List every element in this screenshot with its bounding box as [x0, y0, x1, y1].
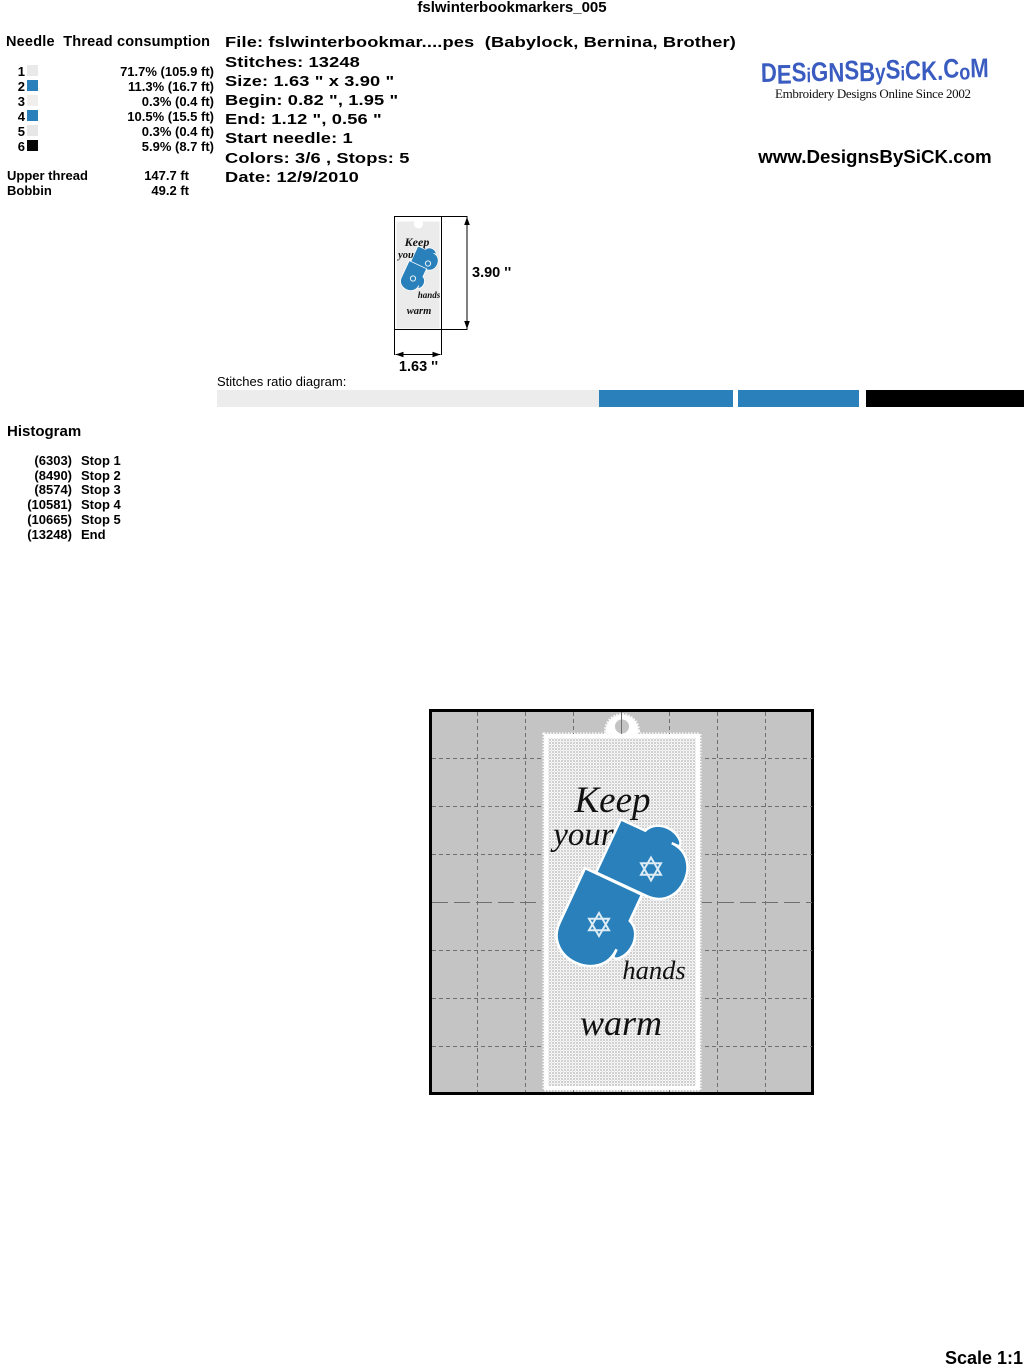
- svg-text:hands: hands: [418, 290, 441, 300]
- svg-text:Keep: Keep: [573, 780, 650, 821]
- svg-text:Embroidery Designs Online Sinc: Embroidery Designs Online Since 2002: [775, 86, 971, 101]
- svg-text:3.90 '': 3.90 '': [472, 265, 511, 281]
- svg-text:Keep: Keep: [404, 235, 430, 249]
- svg-text:warm: warm: [407, 306, 432, 317]
- svg-text:your: your: [550, 817, 614, 853]
- svg-text:hands: hands: [622, 955, 685, 985]
- svg-text:warm: warm: [580, 1003, 662, 1043]
- svg-text:DESiGNSBySiCK.CoM: DESiGNSBySiCK.CoM: [761, 53, 990, 90]
- svg-text:1.63 '': 1.63 '': [399, 359, 438, 375]
